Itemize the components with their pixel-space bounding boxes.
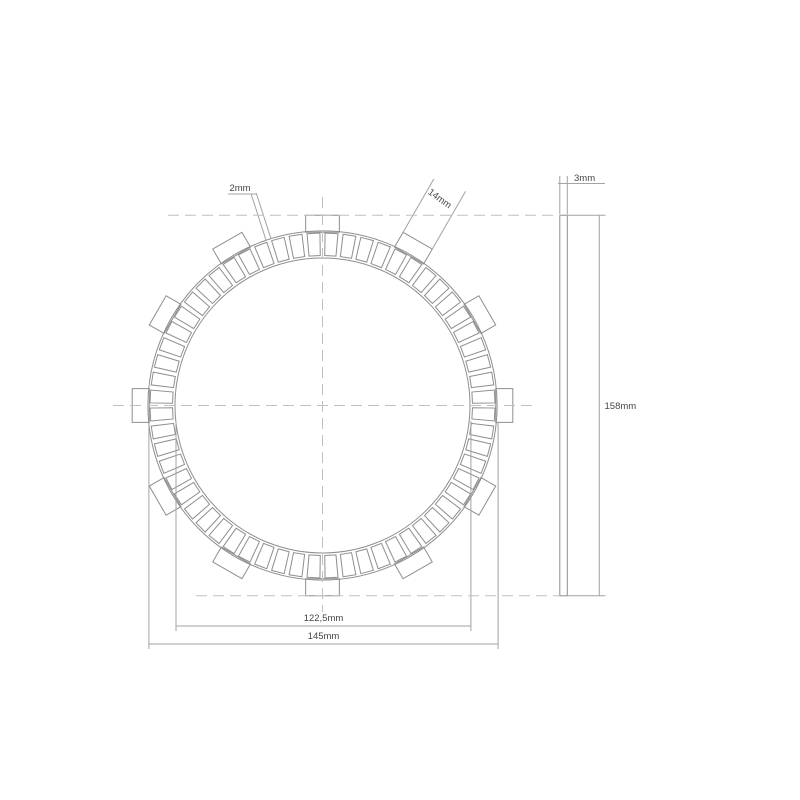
- dim-label-122-5mm: 122,5mm: [304, 613, 344, 624]
- dim-label-14mm: 14mm: [426, 187, 454, 211]
- friction-pad: [466, 355, 491, 373]
- friction-pad: [272, 549, 290, 574]
- friction-pad: [159, 338, 184, 357]
- friction-pad: [356, 237, 374, 262]
- friction-pad: [307, 555, 320, 578]
- friction-pad: [151, 423, 175, 438]
- clutch-plate-drawing: 2mm14mm3mm158mm122,5mm145mm: [0, 0, 800, 800]
- friction-pad: [325, 555, 338, 578]
- side-view-strip: [560, 215, 568, 596]
- friction-pad: [159, 454, 184, 473]
- centerlines: [113, 197, 560, 612]
- friction-pad: [289, 234, 304, 258]
- friction-pad: [289, 553, 304, 577]
- friction-pad: [472, 390, 495, 403]
- dimension-line: [403, 179, 434, 233]
- friction-pad: [356, 549, 374, 574]
- friction-pad: [460, 338, 485, 357]
- friction-pad: [154, 439, 179, 457]
- dim-label-3mm: 3mm: [574, 173, 595, 184]
- friction-pad: [255, 543, 274, 568]
- friction-pad: [371, 242, 390, 267]
- friction-pad: [340, 553, 355, 577]
- dim-label-145mm: 145mm: [308, 631, 340, 642]
- friction-pad: [340, 234, 355, 258]
- friction-pad: [472, 408, 495, 421]
- friction-pad: [466, 439, 491, 457]
- friction-pad: [307, 233, 320, 256]
- friction-pad: [460, 454, 485, 473]
- friction-pad: [470, 423, 494, 438]
- dim-label-2mm: 2mm: [229, 183, 250, 194]
- friction-pad: [470, 372, 494, 387]
- dim-label-158mm: 158mm: [605, 401, 637, 412]
- friction-pad: [325, 233, 338, 256]
- friction-pad: [255, 242, 274, 267]
- friction-pad: [154, 355, 179, 373]
- friction-pad: [272, 237, 290, 262]
- friction-pad: [150, 390, 173, 403]
- friction-pad: [151, 372, 175, 387]
- friction-pad: [150, 408, 173, 421]
- friction-pad: [371, 543, 390, 568]
- technical-drawing-canvas: 2mm14mm3mm158mm122,5mm145mm: [0, 0, 800, 800]
